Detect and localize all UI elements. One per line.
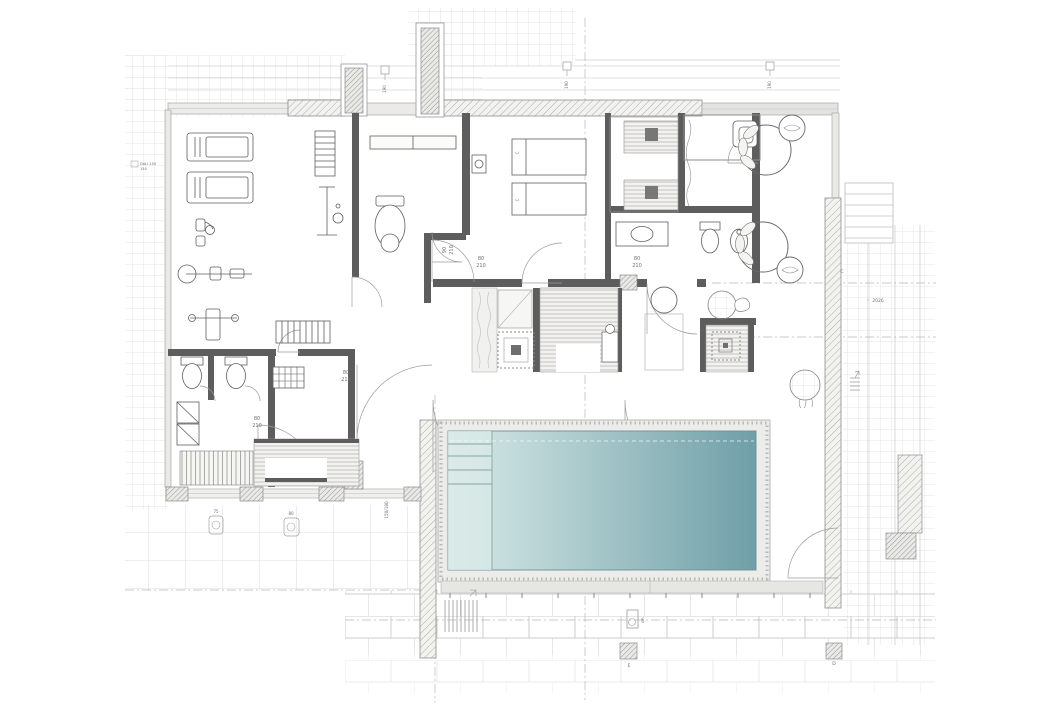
toilet-seat bbox=[381, 234, 399, 252]
drain-tag-1: 75 bbox=[213, 509, 219, 514]
pool-steps-zone bbox=[448, 431, 492, 570]
pool-drain-tag: ØR bbox=[640, 617, 645, 623]
exercise-bike bbox=[196, 219, 215, 246]
wall-vestibule-top bbox=[430, 233, 466, 240]
door-tag-1: 80 210 bbox=[476, 256, 486, 269]
shower-tray bbox=[645, 314, 683, 370]
side-table-2 bbox=[777, 257, 803, 283]
vestibule-door-tag-w: 90 bbox=[442, 247, 448, 253]
rowing-machine bbox=[178, 265, 252, 283]
sauna2-benches bbox=[180, 451, 253, 485]
bench-grid bbox=[273, 367, 304, 388]
gym-equipment bbox=[178, 131, 343, 343]
massage-table-2 bbox=[512, 183, 586, 215]
level-tag: 2026 bbox=[872, 298, 884, 304]
door-tag-2: 80 210 bbox=[632, 256, 642, 269]
paving-pool-south-terrace bbox=[437, 595, 935, 655]
shower2-drain bbox=[723, 343, 728, 348]
pulley-station bbox=[317, 187, 343, 235]
drain-tag-2: 80 bbox=[288, 511, 294, 516]
door-tag-3-w: 80 bbox=[343, 370, 349, 376]
wall-shower2-left bbox=[700, 325, 706, 372]
dali-tag-line2: 150 bbox=[140, 167, 148, 171]
plant-1 bbox=[708, 291, 750, 319]
massage-table-tag-1: C bbox=[515, 151, 520, 154]
wall-bars bbox=[315, 131, 335, 176]
wall-top-2 bbox=[440, 100, 702, 116]
grid-letter-d: D bbox=[832, 661, 836, 667]
wall-changing-top-2 bbox=[298, 349, 355, 356]
light-tag-2: 190 bbox=[564, 81, 569, 89]
column-d bbox=[826, 643, 842, 659]
paving-right-terrace bbox=[843, 225, 935, 645]
door-tag-4-w: 80 bbox=[254, 416, 260, 422]
pool-walkway bbox=[441, 581, 823, 593]
door-tag-2-w: 80 bbox=[634, 256, 640, 262]
relax-notch bbox=[265, 458, 327, 478]
door-tag-1-h: 210 bbox=[476, 263, 486, 269]
side-table-1 bbox=[779, 115, 805, 141]
garden-wall-right bbox=[898, 455, 922, 533]
pillar-2 bbox=[240, 487, 263, 501]
wall-corridor-3 bbox=[637, 279, 647, 287]
light-tag-1: 190 bbox=[382, 85, 387, 93]
pool-water bbox=[448, 431, 756, 570]
chimney-small-core bbox=[345, 68, 363, 113]
wall-changing-top-1 bbox=[168, 349, 276, 356]
sauna-heater-1 bbox=[645, 128, 658, 141]
shower1-drain bbox=[511, 345, 521, 355]
door-tag-2-h: 210 bbox=[632, 263, 642, 269]
wall-vestibule-left bbox=[424, 233, 431, 303]
grid-letter-c: C bbox=[840, 269, 843, 275]
floor-plan-page: DALI 150 150 80 210 80 210 80 210 80 210… bbox=[0, 0, 1039, 708]
basin bbox=[631, 227, 653, 242]
glazing-top-2 bbox=[363, 103, 417, 115]
window-tag: 150/180 bbox=[384, 501, 389, 519]
bench-press bbox=[189, 309, 239, 340]
frosted-screen bbox=[472, 288, 497, 372]
hammam-opening bbox=[556, 344, 600, 372]
sauna-glass-wave bbox=[686, 120, 691, 206]
toilet2-bowl bbox=[702, 229, 719, 253]
massage-room bbox=[472, 139, 586, 215]
wall-right bbox=[825, 198, 841, 608]
sauna-heater-2 bbox=[645, 186, 658, 199]
treadmill-2 bbox=[187, 172, 253, 203]
wall-shower2-right bbox=[748, 325, 754, 372]
hammam-basin bbox=[602, 332, 618, 362]
door-gym bbox=[352, 277, 382, 307]
wc1-bowl bbox=[183, 364, 202, 389]
massage-table-1 bbox=[512, 139, 586, 175]
door-tag-1-w: 80 bbox=[478, 256, 484, 262]
wall-pool-left bbox=[420, 420, 436, 658]
door-massage bbox=[522, 243, 562, 283]
grid-letter-e: E bbox=[628, 663, 631, 669]
door-tag-4: 80 210 bbox=[252, 416, 262, 429]
terrace-light-2 bbox=[563, 62, 571, 76]
relax-frame-inner bbox=[265, 478, 327, 482]
wall-wc-right bbox=[462, 113, 470, 235]
door-changing bbox=[278, 330, 300, 352]
relax-frame-top bbox=[254, 439, 359, 443]
bathroom bbox=[616, 222, 748, 253]
wall-gym-right bbox=[352, 113, 359, 277]
garden-wall-block bbox=[886, 533, 916, 559]
door-tag-4-h: 210 bbox=[252, 423, 262, 429]
chimney-tall-core bbox=[421, 28, 439, 114]
round-chair-2 bbox=[736, 220, 804, 283]
wc2-bowl bbox=[227, 364, 246, 389]
door-tag-3-h: 210 bbox=[341, 377, 351, 383]
wall-corridor-4 bbox=[697, 279, 706, 287]
vestibule-door-tag-h: 210 bbox=[449, 245, 455, 255]
wall-bath-left bbox=[605, 206, 611, 282]
wall-shower1-right bbox=[533, 288, 540, 372]
floor-mat bbox=[276, 321, 330, 343]
column-e bbox=[620, 643, 637, 659]
wall-left-facade bbox=[165, 110, 171, 487]
toilet-tank bbox=[376, 196, 404, 206]
pillar-4 bbox=[404, 487, 421, 501]
wall-corridor-1 bbox=[433, 279, 522, 287]
paving-bottom-left-terrace bbox=[125, 505, 437, 590]
exterior-stairs bbox=[845, 183, 893, 243]
light-tag-3: 190 bbox=[767, 81, 772, 89]
paving-bottom-terrace-faded bbox=[345, 655, 935, 693]
plant-2 bbox=[790, 370, 820, 408]
terrace-light-3 bbox=[766, 62, 774, 76]
wall-top-1 bbox=[288, 100, 343, 116]
dali-tag-line1: DALI 150 bbox=[140, 162, 157, 166]
pillar-3 bbox=[319, 487, 344, 501]
treadmill-1 bbox=[187, 133, 253, 161]
massage-table-tag-2: C bbox=[515, 198, 520, 201]
paving-left-strip bbox=[125, 55, 168, 510]
floor-plan-svg: DALI 150 150 80 210 80 210 80 210 80 210… bbox=[0, 0, 1039, 708]
corridor-column bbox=[620, 275, 637, 290]
vestibule-door-tag: 90 210 bbox=[442, 245, 455, 255]
stool bbox=[651, 287, 677, 313]
glazing-right bbox=[832, 113, 839, 200]
door-wc-stall-2 bbox=[245, 386, 260, 401]
wall-shower2-top bbox=[700, 318, 756, 325]
level-arrow: ‹ bbox=[867, 298, 869, 303]
pillar-1 bbox=[166, 487, 188, 501]
